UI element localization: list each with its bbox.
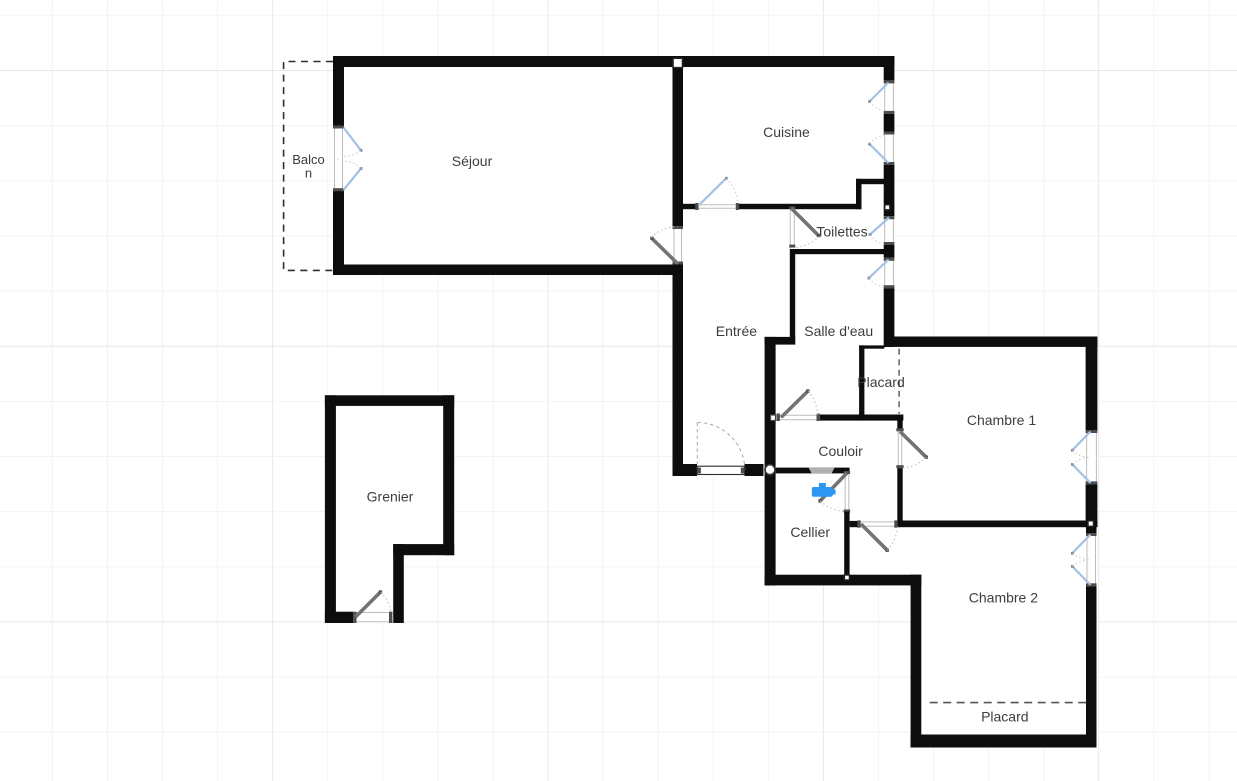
svg-text:Grenier: Grenier (367, 489, 414, 505)
svg-text:Chambre 1: Chambre 1 (967, 412, 1036, 428)
svg-text:Salle d'eau: Salle d'eau (804, 323, 873, 339)
svg-text:Couloir: Couloir (818, 443, 863, 459)
svg-text:Placard: Placard (981, 709, 1028, 725)
svg-text:Entrée: Entrée (716, 323, 757, 339)
svg-text:Chambre 2: Chambre 2 (969, 590, 1038, 606)
svg-text:Toilettes: Toilettes (816, 224, 867, 240)
svg-text:n: n (305, 166, 312, 181)
svg-text:Cellier: Cellier (790, 524, 830, 540)
svg-text:Séjour: Séjour (452, 153, 493, 169)
svg-text:Cuisine: Cuisine (763, 124, 810, 140)
svg-text:Placard: Placard (857, 374, 904, 390)
